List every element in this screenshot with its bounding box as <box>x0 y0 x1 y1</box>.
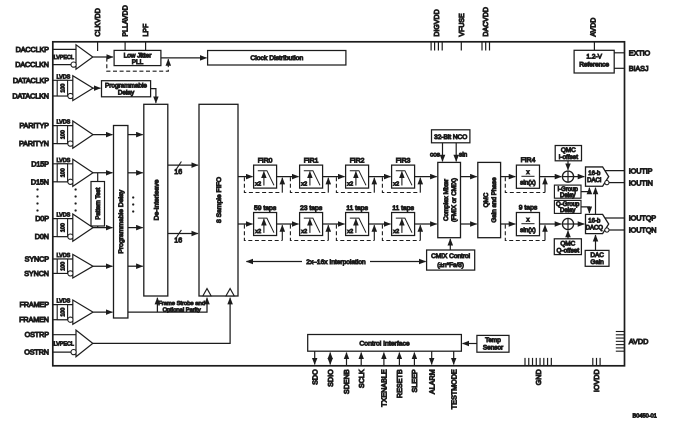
svg-text:FIR0: FIR0 <box>258 157 273 164</box>
svg-text:ALARM: ALARM <box>427 369 436 394</box>
svg-text:DACQ: DACQ <box>586 225 604 231</box>
svg-text:FIR1: FIR1 <box>304 157 319 164</box>
svg-text:11 taps: 11 taps <box>346 205 368 212</box>
svg-text:DACI: DACI <box>587 178 602 184</box>
svg-text:Delay: Delay <box>560 193 575 199</box>
svg-text:Gain and Phase: Gain and Phase <box>491 177 498 223</box>
svg-text:FIR3: FIR3 <box>396 157 411 164</box>
svg-text:IOVDD: IOVDD <box>592 369 601 392</box>
svg-text:Temp: Temp <box>485 337 501 344</box>
svg-text:(±n*Fs/8): (±n*Fs/8) <box>437 262 464 269</box>
svg-text:(FMIX or CMIX): (FMIX or CMIX) <box>451 178 458 222</box>
svg-text:VFUSE: VFUSE <box>459 13 466 37</box>
svg-text:cos: cos <box>430 152 440 159</box>
svg-text:LVDS: LVDS <box>57 213 71 219</box>
svg-text:100: 100 <box>60 168 66 177</box>
svg-text:Delay: Delay <box>118 89 135 96</box>
svg-text:SCLK: SCLK <box>357 369 366 388</box>
svg-text:8 Sample FIFO: 8 Sample FIFO <box>216 177 223 223</box>
svg-text:16: 16 <box>174 169 182 176</box>
svg-text:DACVDD: DACVDD <box>483 7 490 37</box>
svg-text:x2: x2 <box>255 229 261 235</box>
svg-text:x2: x2 <box>301 229 307 235</box>
svg-text:TXENABLE: TXENABLE <box>380 369 389 407</box>
svg-text:32-Bit NCO: 32-Bit NCO <box>434 134 467 141</box>
svg-text:x2: x2 <box>393 229 399 235</box>
svg-text:IOUTIP: IOUTIP <box>629 166 653 175</box>
svg-text:AVDD: AVDD <box>629 337 649 346</box>
svg-text:Delay: Delay <box>560 208 575 214</box>
svg-text:CMIX Control: CMIX Control <box>431 253 471 260</box>
svg-text:IOUTQN: IOUTQN <box>629 226 657 235</box>
svg-text:23 taps: 23 taps <box>300 205 323 212</box>
svg-text:I-offset: I-offset <box>559 154 579 161</box>
svg-text:SDENB: SDENB <box>342 369 351 394</box>
svg-text:DACCLKP: DACCLKP <box>16 45 50 54</box>
svg-text:LVPECL: LVPECL <box>54 341 74 347</box>
svg-text:Frame Strobe and: Frame Strobe and <box>158 301 205 307</box>
svg-text:LVPECL: LVPECL <box>54 55 74 61</box>
svg-text:QMC: QMC <box>483 192 490 207</box>
svg-text:16: 16 <box>174 237 182 244</box>
svg-text:IOUTQP: IOUTQP <box>629 214 657 223</box>
svg-text:OSTRP: OSTRP <box>25 330 50 339</box>
svg-text:TESTMODE: TESTMODE <box>449 369 458 409</box>
svg-text:Control Interface: Control Interface <box>359 341 409 348</box>
svg-text:Sensor: Sensor <box>483 344 504 351</box>
svg-text:Gain: Gain <box>590 259 604 266</box>
svg-text:LVDS: LVDS <box>57 120 71 126</box>
svg-text:BIASJ: BIASJ <box>629 64 649 73</box>
svg-text:EXTIO: EXTIO <box>629 49 651 58</box>
svg-text:x2: x2 <box>301 182 307 188</box>
svg-text:B0450-01: B0450-01 <box>633 414 657 420</box>
svg-text:DATACLKN: DATACLKN <box>12 92 48 101</box>
svg-text:sin(x): sin(x) <box>520 180 536 187</box>
svg-text:De-Interleave: De-Interleave <box>153 179 160 220</box>
svg-text:x2: x2 <box>393 182 399 188</box>
svg-text:FIR2: FIR2 <box>350 157 365 164</box>
svg-text:LVDS: LVDS <box>57 299 71 305</box>
svg-text:Q-offset: Q-offset <box>556 247 579 254</box>
svg-text:100: 100 <box>60 223 66 232</box>
svg-text:PARITYN: PARITYN <box>19 139 49 148</box>
svg-text:Pattern Test: Pattern Test <box>96 187 102 219</box>
svg-text:RESETB: RESETB <box>395 369 404 398</box>
svg-text:SYNCP: SYNCP <box>25 255 50 264</box>
svg-text:D0N: D0N <box>35 232 49 241</box>
svg-text:DACCLKN: DACCLKN <box>15 60 49 69</box>
svg-text:CLKVDD: CLKVDD <box>95 8 102 36</box>
svg-text:Complex Mixer: Complex Mixer <box>443 179 450 221</box>
svg-text:FRAMEP: FRAMEP <box>20 300 50 309</box>
svg-text:LVDS: LVDS <box>57 158 71 164</box>
svg-text:x2: x2 <box>347 229 353 235</box>
svg-text:100: 100 <box>60 262 66 271</box>
svg-text:D15N: D15N <box>31 177 49 186</box>
svg-text:Optional Parity: Optional Parity <box>163 307 201 313</box>
svg-text:IOUTIN: IOUTIN <box>629 178 653 187</box>
svg-text:59 taps: 59 taps <box>254 205 277 212</box>
svg-text:Clock Distribution: Clock Distribution <box>250 55 303 62</box>
svg-text:sin: sin <box>459 152 468 159</box>
svg-text:sin(x): sin(x) <box>520 227 536 234</box>
svg-text:PLL: PLL <box>132 59 144 66</box>
svg-text:11 taps: 11 taps <box>392 205 414 212</box>
svg-text:16-b: 16-b <box>588 219 601 225</box>
svg-text:PARITYP: PARITYP <box>19 121 49 130</box>
svg-text:OSTRN: OSTRN <box>24 348 49 357</box>
svg-text:x2: x2 <box>347 182 353 188</box>
svg-text:D15P: D15P <box>31 159 49 168</box>
svg-text:DIGVDD: DIGVDD <box>434 9 441 36</box>
svg-text:9 taps: 9 taps <box>519 205 538 212</box>
svg-text:SDO: SDO <box>310 369 319 385</box>
svg-text:1.2-V: 1.2-V <box>586 54 602 61</box>
svg-text:D0P: D0P <box>35 214 49 223</box>
svg-text:SLEEP: SLEEP <box>410 369 419 392</box>
svg-text:GND: GND <box>534 369 543 385</box>
svg-text:100: 100 <box>60 130 66 139</box>
svg-text:AVDD: AVDD <box>591 18 598 37</box>
svg-text:DATACLKP: DATACLKP <box>13 76 49 85</box>
svg-text:LPF: LPF <box>143 24 150 37</box>
svg-text:FRAMEN: FRAMEN <box>19 315 49 324</box>
svg-text:x2: x2 <box>255 182 261 188</box>
svg-text:16-b: 16-b <box>588 171 601 177</box>
svg-text:Reference: Reference <box>579 61 609 68</box>
svg-text:2x–16x Interpolation: 2x–16x Interpolation <box>306 259 366 266</box>
svg-text:SYNCN: SYNCN <box>24 269 49 278</box>
svg-text:SDIO: SDIO <box>326 369 335 387</box>
svg-text:LVDS: LVDS <box>57 74 71 80</box>
svg-text:100: 100 <box>60 308 66 317</box>
svg-text:Programmable Delay: Programmable Delay <box>118 189 125 253</box>
svg-text:PLLAVDD: PLLAVDD <box>123 5 130 36</box>
svg-text:100: 100 <box>60 84 66 93</box>
svg-text:LVDS: LVDS <box>57 253 71 259</box>
svg-text:FIR4: FIR4 <box>521 157 536 164</box>
